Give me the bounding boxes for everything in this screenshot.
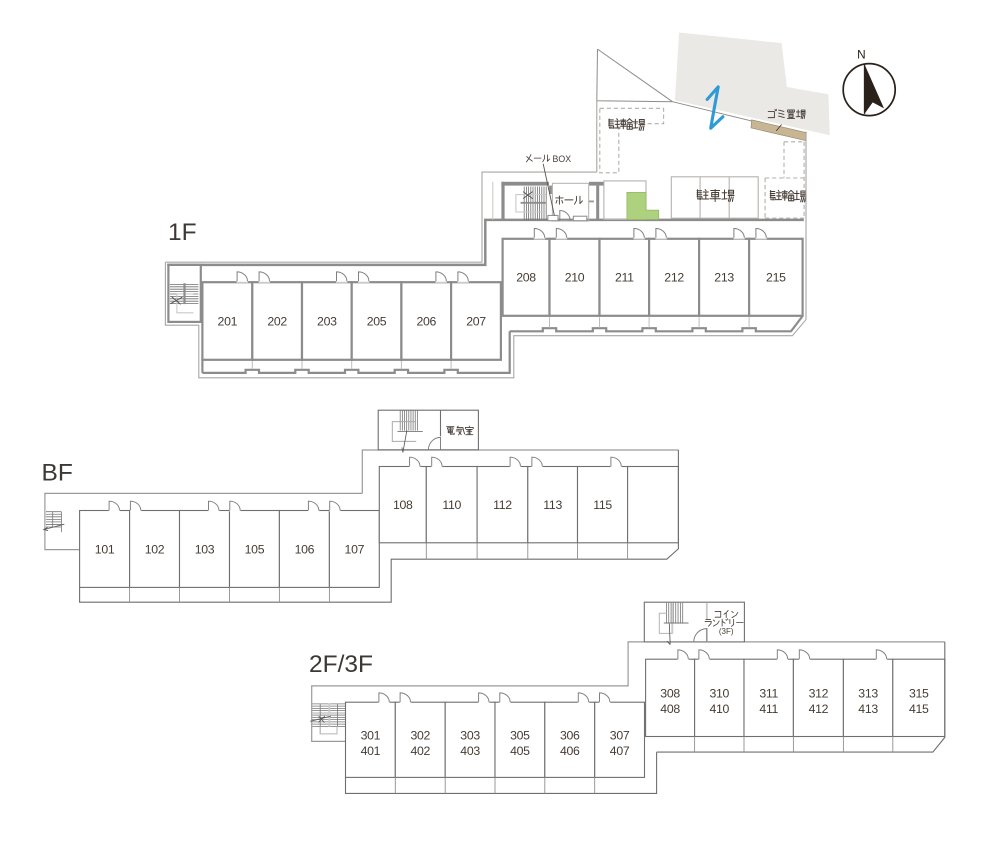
svg-text:315: 315 bbox=[909, 686, 929, 700]
svg-text:405: 405 bbox=[510, 744, 530, 758]
svg-text:BOX: BOX bbox=[553, 154, 572, 164]
svg-text:302: 302 bbox=[410, 728, 430, 742]
svg-text:410: 410 bbox=[709, 702, 729, 716]
svg-text:(3F): (3F) bbox=[719, 627, 734, 636]
svg-text:402: 402 bbox=[410, 744, 430, 758]
svg-text:107: 107 bbox=[345, 542, 365, 556]
svg-text:112: 112 bbox=[493, 498, 512, 512]
svg-text:408: 408 bbox=[660, 702, 680, 716]
svg-text:105: 105 bbox=[245, 542, 265, 556]
svg-text:301: 301 bbox=[361, 728, 381, 742]
svg-text:305: 305 bbox=[510, 728, 530, 742]
svg-text:115: 115 bbox=[593, 498, 612, 512]
svg-text:307: 307 bbox=[610, 728, 630, 742]
svg-text:205: 205 bbox=[367, 314, 387, 328]
svg-text:303: 303 bbox=[460, 728, 480, 742]
svg-text:203: 203 bbox=[317, 314, 337, 328]
svg-text:208: 208 bbox=[516, 271, 536, 285]
svg-text:403: 403 bbox=[460, 744, 480, 758]
svg-text:101: 101 bbox=[95, 542, 115, 556]
svg-text:213: 213 bbox=[714, 271, 734, 285]
svg-text:201: 201 bbox=[218, 314, 238, 328]
svg-text:413: 413 bbox=[858, 702, 878, 716]
svg-text:310: 310 bbox=[709, 686, 729, 700]
svg-text:411: 411 bbox=[759, 702, 778, 716]
svg-text:306: 306 bbox=[560, 728, 580, 742]
svg-text:102: 102 bbox=[145, 542, 165, 556]
svg-text:202: 202 bbox=[267, 314, 287, 328]
svg-text:207: 207 bbox=[466, 314, 486, 328]
svg-text:308: 308 bbox=[660, 686, 680, 700]
svg-text:110: 110 bbox=[442, 498, 461, 512]
svg-text:113: 113 bbox=[543, 498, 562, 512]
svg-text:311: 311 bbox=[759, 686, 778, 700]
svg-text:210: 210 bbox=[565, 271, 585, 285]
svg-text:312: 312 bbox=[809, 686, 829, 700]
svg-text:406: 406 bbox=[560, 744, 580, 758]
svg-text:206: 206 bbox=[416, 314, 436, 328]
svg-text:415: 415 bbox=[909, 702, 929, 716]
svg-text:1F: 1F bbox=[168, 219, 197, 246]
svg-text:N: N bbox=[857, 47, 866, 61]
svg-text:313: 313 bbox=[858, 686, 878, 700]
svg-text:407: 407 bbox=[610, 744, 630, 758]
svg-text:BF: BF bbox=[42, 460, 73, 487]
svg-text:211: 211 bbox=[615, 271, 634, 285]
svg-text:2F/3F: 2F/3F bbox=[309, 651, 373, 678]
svg-text:106: 106 bbox=[295, 542, 315, 556]
svg-text:212: 212 bbox=[664, 271, 684, 285]
svg-text:108: 108 bbox=[393, 498, 413, 512]
svg-text:401: 401 bbox=[361, 744, 381, 758]
svg-text:103: 103 bbox=[195, 542, 215, 556]
svg-text:215: 215 bbox=[766, 271, 786, 285]
svg-text:412: 412 bbox=[809, 702, 829, 716]
